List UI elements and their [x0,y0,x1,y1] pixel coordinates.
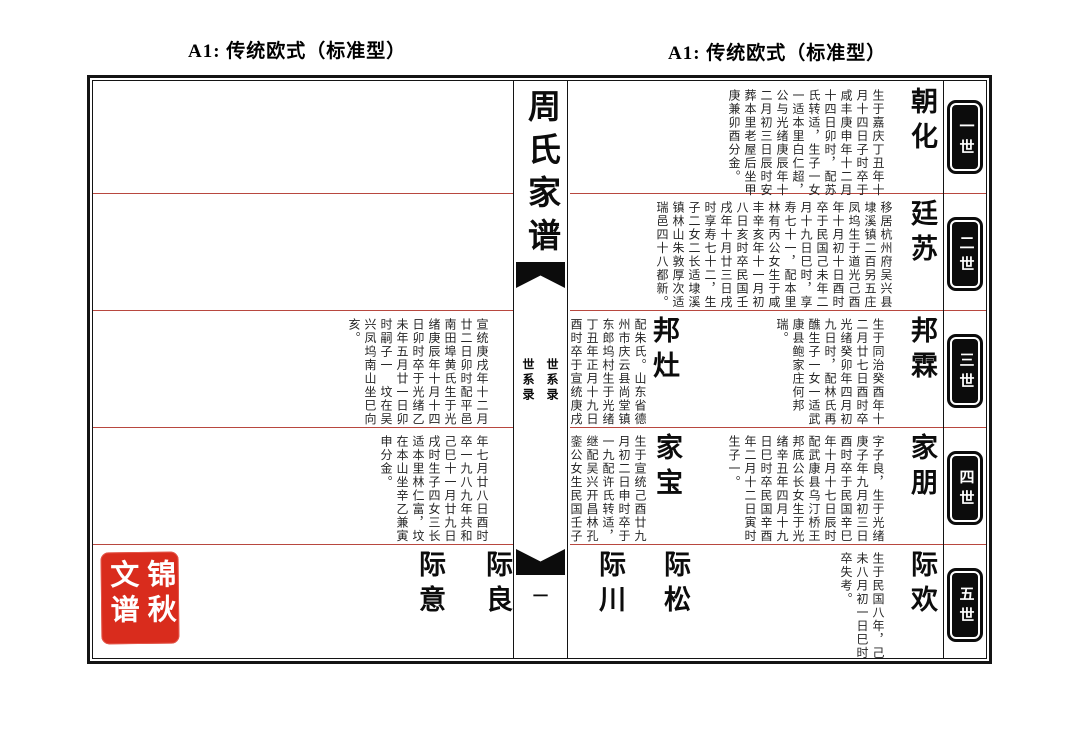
generation-label: 三世 [958,348,973,394]
name-tingsu: 廷苏 [906,199,936,269]
spine-section-labels: 世系录 世系录 [514,358,567,403]
name-bangzao: 邦灶 [648,316,678,386]
record-bangzao: 配朱氏。山东省德州市庆云县尚堂镇东郎坞村生于光绪丁丑年正月十九日酉时卒于宣统庚戌 [568,318,648,429]
seal-text: 锦秋文谱 [103,559,178,638]
name-jiliang: 际良 [481,550,511,620]
right-page-template-title: A1: 传统欧式（标准型） [668,38,886,65]
book-spread: 周氏家谱 世系录 世系录 一 一世 二世 三世 四世 [92,80,987,659]
book-frame: 周氏家谱 世系录 世系录 一 一世 二世 三世 四世 [87,75,992,664]
jinqiu-wenpu-seal: 锦秋文谱 [101,552,180,645]
name-banglin: 邦霖 [906,316,936,386]
record-chaohua: 生于嘉庆丁丑年十月十四日子时卒于咸丰庚申年十二月十四日卯时，配苏氏转适，生子一女… [726,89,886,200]
generation-label: 四世 [958,465,973,511]
name-jiabao: 家宝 [651,433,681,503]
generation-marker-3: 三世 [947,334,983,408]
section-label: 世系录 [520,358,537,403]
name-chaohua: 朝化 [906,87,936,157]
spine-ribbon-top [516,262,565,288]
record-banglin: 生于同治癸酉年十二月廿七日酉时卒光绪癸卯年四月初九日时，配林氏再醮生子一女一适武… [774,318,886,429]
left-page-template-title: A1: 传统欧式（标准型） [188,36,406,63]
generation-marker-4: 四世 [947,451,983,525]
name-jiyi: 际意 [414,550,444,620]
name-jihuan: 际欢 [906,550,936,620]
record-jiabao-continued: 年七月廿八日酉时卒一九八九年共和己巳十一月廿九日戌时生子四女三长适本里林仁富，坟… [378,435,490,546]
spine: 周氏家谱 世系录 世系录 一 [513,81,568,658]
generation-marker-2: 二世 [947,217,983,291]
generation-marker-5: 五世 [947,568,983,642]
genealogy-template-preview: A1: 传统欧式（标准型） A1: 传统欧式（标准型） 周氏家谱 世系录 世系录 [0,0,1080,733]
section-label: 世系录 [544,358,561,403]
record-bangzao-continued: 宣统庚戌年十二月廿二日卯时配平邑南田埠黄氏生于光绪庚辰年十月十四日卯时卒于光绪乙… [346,318,490,429]
record-tingsu: 移居杭州府吴兴县埭溪镇二百另五庄凤坞生于道光己酉年十月初十日酉时卒于民国己未年二… [654,201,894,312]
name-jichuan: 际川 [594,550,624,620]
record-jihuan: 生于民国八年，己未八月初一日巳时卒失考。 [838,552,886,663]
name-jisong: 际松 [659,550,689,620]
generation-marker-1: 一世 [947,100,983,174]
record-jiapeng: 字子良，生于光绪庚子年九月初三日酉时卒于民国辛巳年十月十七日辰时配武康县乌汀桥王… [726,435,886,546]
record-jiabao: 生于宣统己酉廿九月初二日申时卒于一九配许氏转适，继配吴兴开昌林孔銮公女生民国壬子 [568,435,648,546]
spine-ribbon-bottom [516,549,565,575]
marker-column-divider [943,81,944,658]
generation-label: 五世 [958,582,973,628]
generation-label: 二世 [958,231,973,277]
name-jiapeng: 家朋 [906,433,936,503]
spine-book-title: 周氏家谱 [517,89,565,261]
page-number: 一 [514,585,567,606]
generation-label: 一世 [958,114,973,160]
row-line [93,193,513,194]
row-line [93,310,513,311]
